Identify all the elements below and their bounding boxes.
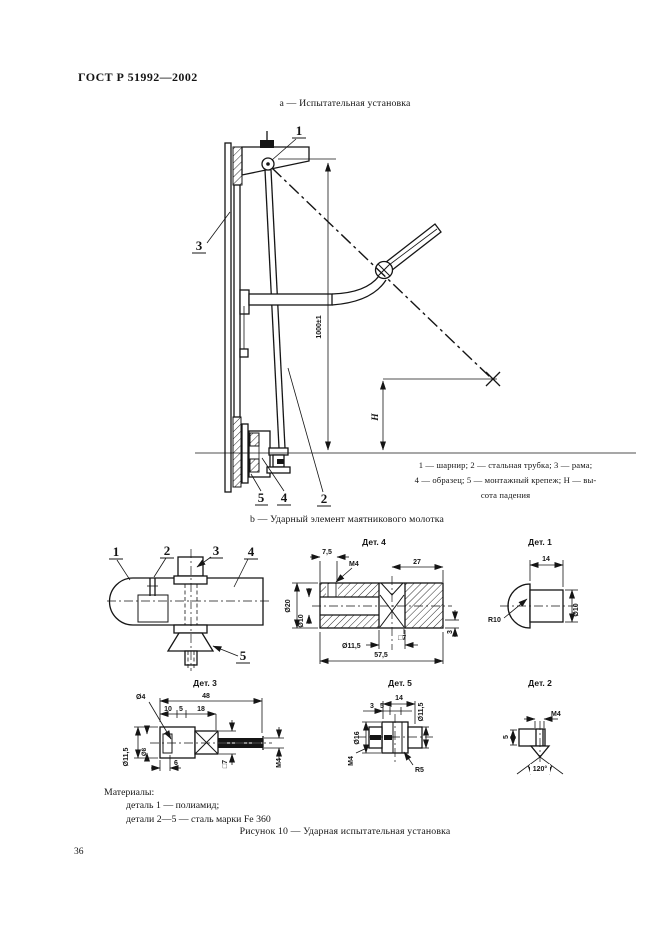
dim-det4-thread: M4 — [349, 561, 359, 568]
assembly-label-5: 5 — [240, 648, 247, 663]
dim-det1-dia: Ø10 — [573, 603, 580, 616]
dim-det2-len: 5 — [503, 735, 510, 739]
dim-det2-angle: 120° — [533, 765, 548, 773]
dim-det3-18: 18 — [197, 706, 205, 713]
detail-5-drawing: Дет. 5 14 3 5 Ø11,5 — [348, 678, 433, 774]
dim-det3-total: 48 — [202, 693, 210, 700]
dim-det4-square: □7 — [398, 635, 406, 642]
dim-det5-dia16: Ø16 — [354, 731, 361, 744]
dim-label-pendulum-length: 1000±1 — [316, 315, 323, 338]
detail-1-drawing: Дет. 1 R10 14 Ø10 — [488, 537, 580, 628]
dim-det3-5: 5 — [179, 706, 183, 713]
materials-block: Материалы: деталь 1 — полиамид; детали 2… — [104, 786, 271, 826]
materials-line-2: детали 2—5 — сталь марки Fe 360 — [126, 813, 271, 826]
dim-det4-dia10: Ø10 — [298, 614, 305, 627]
part-label-steel-tube: 2 — [321, 491, 328, 506]
dim-det5-5: 5 — [380, 703, 384, 710]
detail-4-drawing: Дет. 4 7,5 M4 27 — [285, 537, 459, 664]
dim-det1-len: 14 — [542, 556, 550, 563]
dim-det4-3: 3 — [447, 630, 454, 634]
part-label-hinge: 1 — [296, 123, 303, 138]
page-number: 36 — [74, 847, 84, 857]
detail-3-title: Дет. 3 — [193, 678, 217, 688]
dim-det3-thread: M4 — [276, 758, 283, 768]
figure-caption: Рисунок 10 — Ударная испытательная устан… — [195, 826, 495, 837]
figure-b-assembly-drawing: 1 2 3 4 5 — [107, 543, 272, 671]
dim-det4-dia115: Ø11,5 — [342, 643, 361, 650]
assembly-label-4: 4 — [248, 544, 255, 559]
dim-det4-27: 27 — [413, 559, 421, 566]
detail-2-drawing: Дет. 2 M4 5 120° — [503, 678, 563, 774]
detail-1-title: Дет. 1 — [528, 537, 552, 547]
detail-4-title: Дет. 4 — [362, 537, 386, 547]
figure-a-installation-drawing: 1000±1 H 1 3 5 4 2 — [192, 123, 636, 506]
dim-det3-depth: 6 — [174, 760, 178, 767]
dim-det4-75: 7,5 — [322, 549, 332, 556]
part-label-specimen: 4 — [281, 490, 288, 505]
dim-det3-10: 10 — [164, 706, 172, 713]
dim-det4-dia20: Ø20 — [285, 599, 292, 612]
dim-det5-3: 3 — [370, 703, 374, 710]
dim-det5-radius: R5 — [415, 767, 424, 774]
detail-2-title: Дет. 2 — [528, 678, 552, 688]
dim-det4-total: 57,5 — [374, 652, 388, 659]
dim-label-drop-height: H — [371, 413, 381, 422]
materials-line-1: деталь 1 — полиамид; — [126, 799, 271, 812]
legend-line-1: 1 — шарнир; 2 — стальная трубка; 3 — рам… — [368, 458, 643, 473]
materials-title: Материалы: — [104, 786, 271, 799]
dim-det3-dia8: Ø8 — [141, 747, 148, 756]
dim-det5-thread: M4 — [348, 756, 355, 766]
dim-det1-radius: R10 — [488, 617, 501, 624]
part-label-fixing: 5 — [258, 490, 265, 505]
assembly-label-3: 3 — [213, 543, 220, 558]
assembly-label-1: 1 — [113, 544, 120, 559]
detail-5-title: Дет. 5 — [388, 678, 412, 688]
assembly-label-2: 2 — [164, 543, 171, 558]
dim-det3-square: □7 — [222, 760, 229, 768]
standard-document-page: ГОСТ Р 51992—2002 а — Испытательная уста… — [0, 0, 661, 936]
dim-det2-thread: M4 — [551, 711, 561, 718]
figure-a-legend: 1 — шарнир; 2 — стальная трубка; 3 — рам… — [368, 458, 643, 503]
dim-det5-dia115: Ø11,5 — [418, 703, 425, 722]
legend-line-2: 4 — образец; 5 — монтажный крепеж; Н — в… — [368, 473, 643, 488]
part-label-frame: 3 — [196, 238, 203, 253]
detail-3-drawing: Дет. 3 Ø4 48 10 5 18 Ø11 — [123, 678, 284, 771]
dim-det5-14: 14 — [395, 695, 403, 702]
legend-line-3: сота падения — [368, 488, 643, 503]
dim-det3-dia115: Ø11,5 — [123, 748, 130, 767]
dim-det3-hole: Ø4 — [136, 694, 145, 701]
figure-b-caption: b — Ударный элемент маятникового молотка — [222, 514, 472, 525]
